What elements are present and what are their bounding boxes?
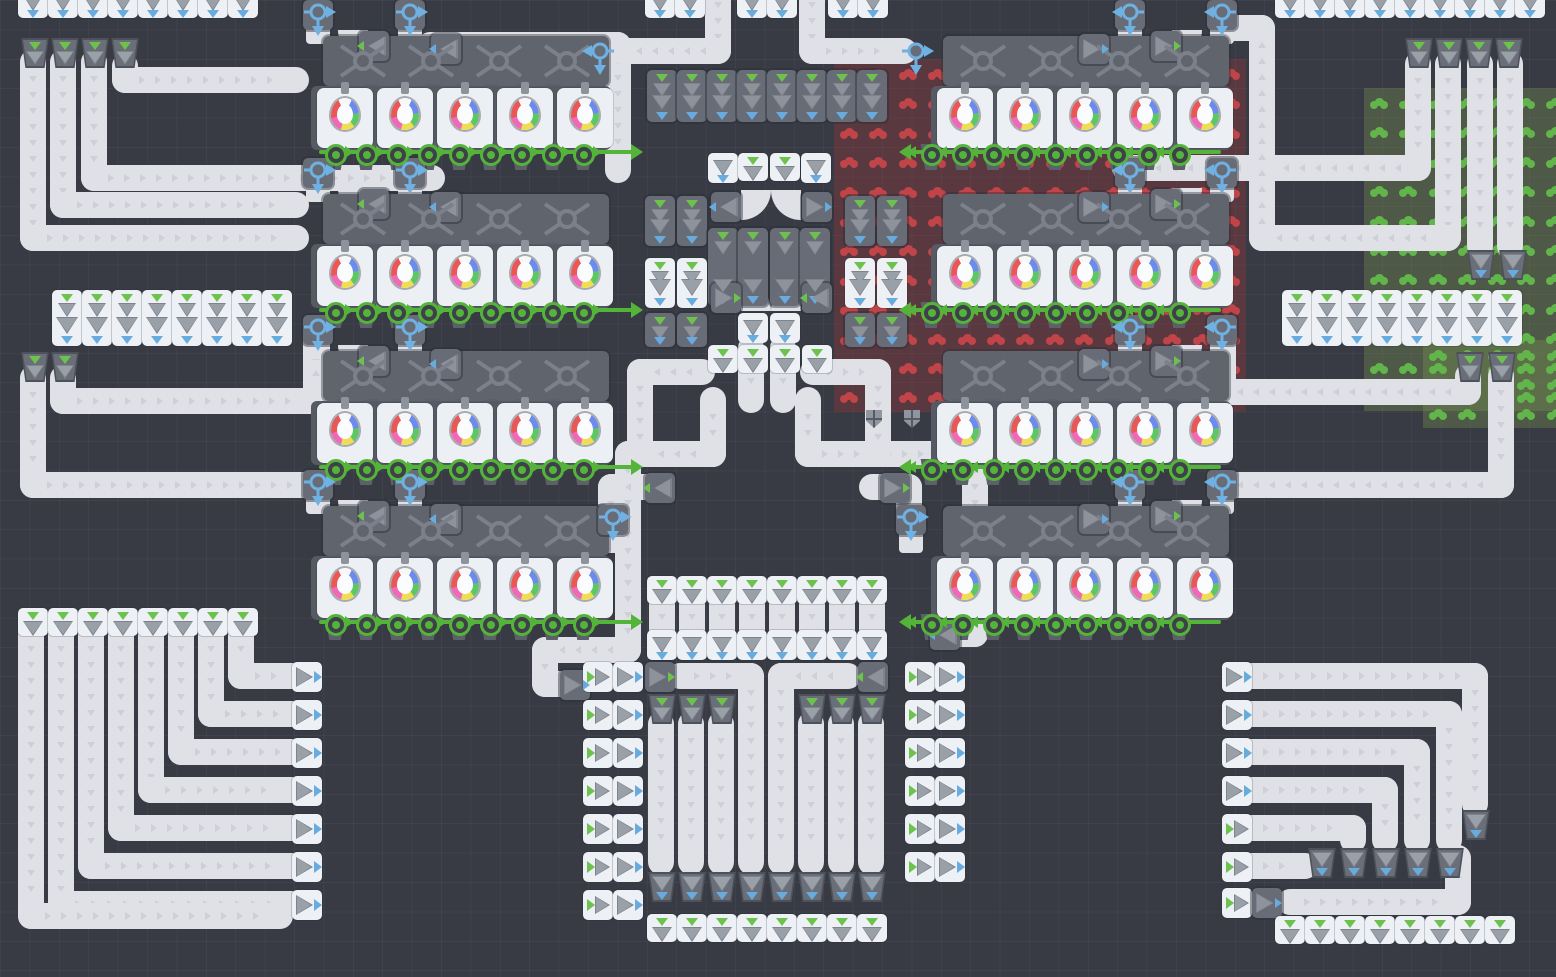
arrow-glyph xyxy=(1506,206,1514,212)
arrow-glyph xyxy=(204,0,222,9)
arrow-glyph xyxy=(810,175,822,183)
arrow-glyph xyxy=(57,10,69,18)
arrow-glyph xyxy=(1257,894,1272,912)
green-pipe-node-icon xyxy=(1076,459,1098,481)
arrow-glyph xyxy=(657,754,665,760)
balancer-cross-icon xyxy=(953,198,1013,240)
green-berry-icon xyxy=(1522,350,1531,358)
arrow-glyph xyxy=(624,596,632,602)
arrow-glyph xyxy=(1263,672,1269,680)
arrow-glyph xyxy=(744,280,762,292)
arrow-glyph xyxy=(686,918,698,926)
arrow-glyph xyxy=(747,770,755,776)
conveyor-belt[interactable] xyxy=(798,711,824,875)
arrow-glyph xyxy=(682,280,702,294)
rainbow-orb-icon xyxy=(951,568,979,600)
arrow-glyph xyxy=(1263,824,1269,832)
arrow-glyph xyxy=(716,892,728,900)
arrow-glyph xyxy=(1365,481,1371,489)
arrow-glyph xyxy=(631,144,643,160)
arrow-glyph xyxy=(57,822,65,828)
green-pipe-node-icon xyxy=(387,614,409,636)
arrow-glyph xyxy=(836,892,848,900)
arrow-glyph xyxy=(687,786,695,792)
arrow-glyph xyxy=(1336,898,1342,906)
arrow-glyph xyxy=(24,0,42,9)
arrow-glyph xyxy=(87,612,99,620)
arrow-glyph xyxy=(744,321,762,334)
conveyor-belt[interactable] xyxy=(18,903,293,929)
arrow-glyph xyxy=(1258,122,1266,128)
arrow-glyph xyxy=(205,397,211,405)
balancer-cross-icon xyxy=(469,355,529,397)
arrow-glyph xyxy=(957,747,965,759)
arrow-glyph xyxy=(743,928,761,940)
green-pipe-node-icon xyxy=(449,144,471,166)
mixer-inlet-pipe xyxy=(401,552,409,564)
conveyor-belt[interactable] xyxy=(648,711,674,875)
arrow-glyph xyxy=(151,336,163,344)
arrow-glyph xyxy=(1381,336,1393,344)
arrow-glyph xyxy=(177,726,185,732)
arrow-glyph xyxy=(716,112,728,120)
arrow-glyph xyxy=(854,236,866,244)
arrow-glyph xyxy=(159,234,165,242)
pipe-node-icon xyxy=(296,156,340,196)
arrow-glyph xyxy=(1464,356,1476,364)
arrow-glyph xyxy=(681,0,699,9)
rainbow-orb-icon xyxy=(331,568,359,600)
arrow-glyph xyxy=(1476,94,1484,100)
arrow-glyph xyxy=(1174,41,1181,51)
arrow-glyph xyxy=(777,706,785,712)
arrow-glyph xyxy=(269,304,285,315)
arrow-glyph xyxy=(1279,748,1285,756)
arrow-glyph xyxy=(656,698,668,706)
arrow-glyph xyxy=(27,886,35,892)
arrow-glyph xyxy=(837,834,845,840)
arrow-glyph xyxy=(27,726,35,732)
arrow-glyph xyxy=(90,156,98,162)
green-berry-icon xyxy=(1522,127,1531,135)
green-pipe-node-icon xyxy=(511,302,533,324)
green-pipe-node-icon xyxy=(480,302,502,324)
arrow-glyph xyxy=(241,294,253,302)
arrow-glyph xyxy=(1444,94,1452,100)
arrow-glyph xyxy=(745,242,761,253)
arrow-glyph xyxy=(596,707,608,723)
arrow-glyph xyxy=(940,744,954,762)
arrow-glyph xyxy=(624,548,632,554)
arrow-glyph xyxy=(297,820,311,838)
mixer-inlet-pipe xyxy=(961,397,969,409)
conveyor-belt[interactable] xyxy=(138,777,305,803)
arrow-glyph xyxy=(127,234,133,242)
green-berry-icon xyxy=(1552,350,1556,358)
arrow-glyph xyxy=(27,790,35,796)
arrow-glyph xyxy=(61,294,73,302)
arrow-glyph xyxy=(874,434,882,440)
red-berry-icon xyxy=(1021,334,1030,342)
arrow-glyph xyxy=(1401,0,1419,9)
arrow-glyph xyxy=(596,859,608,875)
arrow-glyph xyxy=(957,671,965,683)
game-board xyxy=(0,0,1556,977)
arrow-glyph xyxy=(1295,748,1301,756)
arrow-glyph xyxy=(314,861,322,873)
arrow-glyph xyxy=(717,738,725,744)
arrow-glyph xyxy=(1284,10,1296,18)
arrow-glyph xyxy=(777,834,785,840)
arrow-glyph xyxy=(654,200,666,208)
arrow-glyph xyxy=(687,754,695,760)
arrow-glyph xyxy=(429,359,436,369)
arrow-glyph xyxy=(117,806,125,812)
arrow-glyph xyxy=(777,770,785,776)
conveyor-belt[interactable] xyxy=(858,711,884,875)
arrow-glyph xyxy=(1226,861,1234,873)
rainbow-orb-icon xyxy=(1191,256,1219,288)
arrow-glyph xyxy=(500,146,509,158)
arrow-glyph xyxy=(885,479,900,497)
arrow-glyph xyxy=(686,698,698,706)
arrow-glyph xyxy=(236,174,242,182)
green-berry-icon xyxy=(1522,333,1531,341)
arrow-glyph xyxy=(1347,318,1367,332)
arrow-glyph xyxy=(1506,110,1514,116)
arrow-glyph xyxy=(1379,304,1395,315)
arrow-glyph xyxy=(225,710,231,718)
mixer-inlet-pipe xyxy=(1021,397,1029,409)
mixer-inlet-pipe xyxy=(1021,240,1029,252)
arrow-glyph xyxy=(207,318,227,332)
arrow-glyph xyxy=(670,368,676,376)
red-berry-icon xyxy=(845,157,854,165)
arrow-glyph xyxy=(625,483,631,491)
arrow-glyph xyxy=(1431,930,1449,942)
arrow-glyph xyxy=(747,802,755,808)
arrow-glyph xyxy=(653,928,671,940)
arrow-glyph xyxy=(204,174,210,182)
rainbow-orb-icon xyxy=(571,413,599,445)
green-berry-icon xyxy=(1375,216,1384,224)
arrow-glyph xyxy=(687,834,695,840)
arrow-glyph xyxy=(800,293,807,303)
arrow-glyph xyxy=(717,232,729,240)
arrow-glyph xyxy=(1381,820,1389,826)
arrow-glyph xyxy=(211,336,223,344)
mixer-inlet-pipe xyxy=(1141,82,1149,94)
rainbow-orb-icon xyxy=(391,568,419,600)
red-berry-icon xyxy=(963,334,972,342)
arrow-glyph xyxy=(117,612,129,620)
arrow-glyph xyxy=(886,317,898,325)
arrow-glyph xyxy=(1501,294,1513,302)
arrow-glyph xyxy=(773,877,791,890)
arrow-glyph xyxy=(833,96,851,108)
arrow-glyph xyxy=(27,758,35,764)
arrow-glyph xyxy=(836,698,848,706)
conveyor-belt[interactable] xyxy=(678,711,704,875)
arrow-glyph xyxy=(684,708,700,719)
mixer-inlet-pipe xyxy=(961,552,969,564)
arrow-glyph xyxy=(714,359,732,371)
arrow-glyph xyxy=(714,161,732,174)
arrow-glyph xyxy=(263,824,269,832)
balancer-cross-icon xyxy=(1089,510,1149,552)
arrow-glyph xyxy=(1431,0,1449,9)
arrow-glyph xyxy=(273,710,279,718)
arrow-glyph xyxy=(183,824,189,832)
arrow-glyph xyxy=(156,174,162,182)
balancer-cross-icon xyxy=(1089,198,1149,240)
arrow-glyph xyxy=(1423,672,1429,680)
arrow-glyph xyxy=(1379,164,1385,172)
arrow-glyph xyxy=(747,786,755,792)
arrow-glyph xyxy=(777,242,793,253)
arrow-glyph xyxy=(90,124,98,130)
arrow-glyph xyxy=(1253,481,1259,489)
green-berry-icon xyxy=(1551,274,1556,282)
arrow-glyph xyxy=(1258,58,1266,64)
green-pipe-node-icon xyxy=(542,144,564,166)
arrow-glyph xyxy=(271,481,277,489)
arrow-glyph xyxy=(429,514,436,524)
arrow-glyph xyxy=(1471,294,1483,302)
arrow-glyph xyxy=(864,84,880,95)
arrow-glyph xyxy=(469,616,478,628)
arrow-glyph xyxy=(89,304,105,315)
arrow-glyph xyxy=(1187,164,1193,172)
arrow-glyph xyxy=(57,710,65,716)
belt-curve[interactable] xyxy=(741,190,771,220)
arrow-glyph xyxy=(253,912,259,920)
arrow-glyph xyxy=(87,806,95,812)
arrow-glyph xyxy=(144,0,162,9)
arrow-glyph xyxy=(27,366,43,377)
conveyor-belt[interactable] xyxy=(168,739,305,765)
arrow-glyph xyxy=(593,616,602,628)
arrow-glyph xyxy=(167,824,173,832)
arrow-glyph xyxy=(189,201,195,209)
arrow-glyph xyxy=(117,10,129,18)
arrow-glyph xyxy=(297,896,311,914)
arrow-glyph xyxy=(687,770,695,776)
arrow-glyph xyxy=(803,96,821,108)
conveyor-belt[interactable] xyxy=(828,711,854,875)
arrow-glyph xyxy=(29,424,37,430)
arrow-glyph xyxy=(59,304,75,315)
arrow-glyph xyxy=(635,747,643,759)
green-berry-icon xyxy=(1375,363,1384,371)
arrow-glyph xyxy=(854,317,866,325)
arrow-glyph xyxy=(1414,126,1422,132)
arrow-glyph xyxy=(1304,898,1310,906)
arrow-glyph xyxy=(746,10,758,18)
red-berry-icon xyxy=(1080,334,1089,342)
arrow-glyph xyxy=(713,96,731,108)
conveyor-belt[interactable] xyxy=(627,359,653,463)
arrow-glyph xyxy=(1471,786,1479,792)
arrow-glyph xyxy=(1316,868,1328,876)
arrow-glyph xyxy=(618,782,632,800)
arrow-glyph xyxy=(658,450,664,458)
arrow-glyph xyxy=(776,280,794,292)
green-pipe-node-icon xyxy=(1045,302,1067,324)
arrow-glyph xyxy=(747,378,755,384)
mixer-inlet-pipe xyxy=(521,397,529,409)
arrow-glyph xyxy=(203,76,209,84)
arrow-glyph xyxy=(1368,898,1374,906)
arrow-glyph xyxy=(1413,814,1421,820)
arrow-glyph xyxy=(650,280,670,294)
arrow-glyph xyxy=(1349,481,1355,489)
green-pipe-node-icon xyxy=(1045,614,1067,636)
arrow-glyph xyxy=(1506,190,1514,196)
green-berry-icon xyxy=(1522,216,1531,224)
arrow-glyph xyxy=(713,928,731,940)
arrow-glyph xyxy=(1464,10,1476,18)
arrow-glyph xyxy=(777,738,785,744)
arrow-glyph xyxy=(1411,336,1423,344)
arrow-glyph xyxy=(776,580,788,588)
arrow-glyph xyxy=(909,861,917,873)
arrow-glyph xyxy=(500,616,509,628)
arrow-glyph xyxy=(583,680,590,690)
arrow-glyph xyxy=(27,662,35,668)
arrow-glyph xyxy=(1359,710,1365,718)
arrow-glyph xyxy=(171,76,177,84)
arrow-glyph xyxy=(271,294,283,302)
arrow-glyph xyxy=(27,694,35,700)
arrow-glyph xyxy=(1476,158,1484,164)
arrow-glyph xyxy=(1444,142,1452,148)
conveyor-belt[interactable] xyxy=(198,701,305,727)
red-berry-icon xyxy=(933,216,942,224)
arrow-glyph xyxy=(684,84,700,95)
arrow-glyph xyxy=(674,450,680,458)
arrow-glyph xyxy=(867,786,875,792)
arrow-glyph xyxy=(287,481,293,489)
arrow-glyph xyxy=(776,321,794,334)
arrow-glyph xyxy=(207,678,215,684)
conveyor-belt[interactable] xyxy=(1249,15,1275,251)
arrow-glyph xyxy=(1476,110,1484,116)
arrow-glyph xyxy=(1258,42,1266,48)
arrow-glyph xyxy=(1497,318,1517,332)
arrow-glyph xyxy=(1471,706,1479,712)
arrow-glyph xyxy=(45,912,51,920)
arrow-glyph xyxy=(1311,824,1317,832)
arrow-glyph xyxy=(285,397,291,405)
arrow-glyph xyxy=(429,202,436,212)
arrow-glyph xyxy=(1226,823,1234,835)
arrow-glyph xyxy=(747,232,759,240)
mixer-inlet-pipe xyxy=(461,552,469,564)
arrow-glyph xyxy=(231,824,237,832)
arrow-glyph xyxy=(1411,52,1427,63)
conveyor-belt[interactable] xyxy=(1340,815,1366,853)
green-pipe-node-icon xyxy=(952,302,974,324)
arrow-glyph xyxy=(314,823,322,835)
arrow-glyph xyxy=(803,638,821,651)
arrow-glyph xyxy=(1301,481,1307,489)
arrow-glyph xyxy=(1388,234,1394,242)
red-berry-icon xyxy=(874,187,883,195)
arrow-glyph xyxy=(940,858,954,876)
arrow-glyph xyxy=(1291,336,1303,344)
arrow-glyph xyxy=(618,706,632,724)
rainbow-orb-icon xyxy=(451,98,479,130)
arrow-glyph xyxy=(1349,304,1365,315)
arrow-glyph xyxy=(1258,154,1266,160)
arrow-glyph xyxy=(117,318,137,332)
arrow-glyph xyxy=(84,622,102,634)
arrow-glyph xyxy=(690,450,696,458)
conveyor-belt[interactable] xyxy=(1372,777,1398,853)
balancer-cross-icon xyxy=(537,355,597,397)
arrow-glyph xyxy=(803,877,821,890)
arrow-glyph xyxy=(867,754,875,760)
pipe-node-icon xyxy=(591,503,635,543)
arrow-glyph xyxy=(275,748,281,756)
arrow-glyph xyxy=(1317,481,1323,489)
arrow-glyph xyxy=(1444,868,1456,876)
belt-curve[interactable] xyxy=(771,190,801,220)
arrow-glyph xyxy=(850,280,870,294)
arrow-glyph xyxy=(1497,422,1505,428)
arrow-glyph xyxy=(909,671,917,683)
arrow-glyph xyxy=(779,335,791,343)
arrow-glyph xyxy=(1429,481,1435,489)
conveyor-belt[interactable] xyxy=(708,711,734,875)
arrow-glyph xyxy=(1471,722,1479,728)
arrow-glyph xyxy=(255,234,261,242)
arrow-glyph xyxy=(237,912,243,920)
arrow-glyph xyxy=(1506,222,1514,228)
arrow-glyph xyxy=(117,662,125,668)
arrow-glyph xyxy=(803,590,821,602)
arrow-glyph xyxy=(239,304,255,315)
arrow-glyph xyxy=(807,754,815,760)
arrow-glyph xyxy=(683,96,701,108)
arrow-glyph xyxy=(714,708,730,719)
arrow-glyph xyxy=(593,146,602,158)
arrow-glyph xyxy=(149,304,165,315)
pipe-node-icon xyxy=(388,313,432,353)
conveyor-belt[interactable] xyxy=(1210,379,1481,405)
arrow-glyph xyxy=(654,317,666,325)
arrow-glyph xyxy=(1333,388,1339,396)
arrow-glyph xyxy=(596,783,608,799)
arrow-glyph xyxy=(1445,808,1453,814)
conveyor-belt[interactable] xyxy=(1404,739,1430,853)
arrow-glyph xyxy=(188,174,194,182)
arrow-glyph xyxy=(899,302,911,318)
arrow-glyph xyxy=(713,590,731,602)
arrow-glyph xyxy=(127,481,133,489)
arrow-glyph xyxy=(1381,294,1393,302)
red-berry-icon xyxy=(904,187,913,195)
arrow-glyph xyxy=(778,614,786,620)
green-pipe-node-icon xyxy=(356,459,378,481)
balancer-cross-icon xyxy=(1157,510,1217,552)
arrow-glyph xyxy=(1291,294,1303,302)
arrow-glyph xyxy=(1311,748,1317,756)
mixer-inlet-pipe xyxy=(521,552,529,564)
arrow-glyph xyxy=(345,146,354,158)
balancer-cross-icon xyxy=(1089,40,1149,82)
